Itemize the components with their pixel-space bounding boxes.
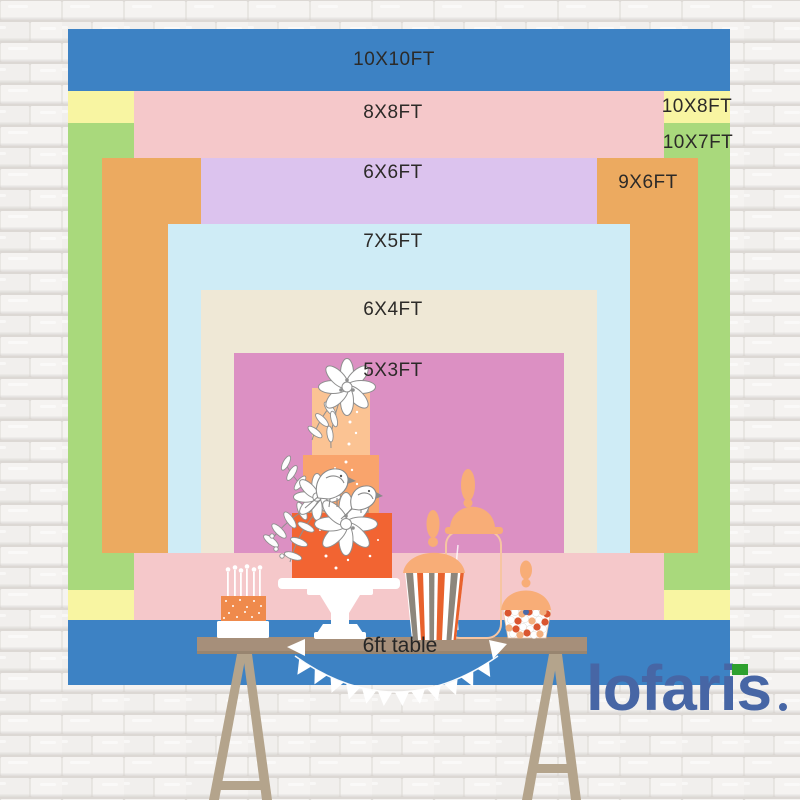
mini-cake-body: [221, 596, 266, 622]
candy-jar: [501, 561, 551, 639]
left-trestle-crossbar: [216, 781, 264, 790]
right-trestle-crossbar: [530, 764, 573, 773]
brand-logo-text: lofaris: [586, 652, 771, 724]
brand-logo: lofaris: [586, 656, 771, 720]
left-trestle-leg-b: [243, 654, 272, 800]
candles: [226, 564, 263, 598]
logo-trademark-dot: [779, 703, 787, 711]
cake-stand: [278, 578, 400, 639]
tiered-cake: [262, 359, 400, 640]
right-trestle-leg-b: [553, 654, 581, 800]
glass-jar-lid: [445, 469, 503, 534]
table-legs: [209, 654, 581, 800]
right-trestle-leg-a: [522, 654, 558, 800]
table: [197, 637, 587, 654]
mini-cake-base: [217, 621, 269, 638]
left-trestle-leg-a: [209, 654, 246, 800]
table-edge: [197, 651, 587, 654]
flower-top: [319, 359, 376, 416]
mini-candle-cake: [217, 564, 269, 638]
logo-accent-rect: [732, 664, 748, 675]
candy-jar-lid: [501, 561, 551, 611]
